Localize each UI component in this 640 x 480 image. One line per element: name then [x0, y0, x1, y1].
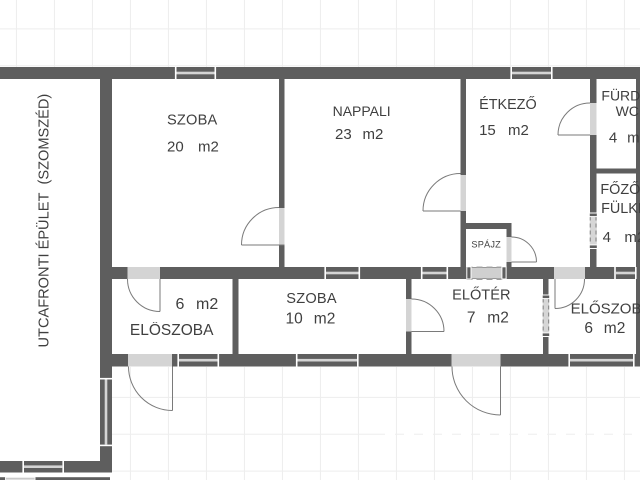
svg-text:ELŐTÉR: ELŐTÉR	[452, 287, 510, 304]
svg-text:SZOBA: SZOBA	[286, 291, 337, 307]
svg-text:m2: m2	[508, 122, 529, 139]
svg-text:ELŐSZOBA: ELŐSZOBA	[571, 301, 640, 318]
svg-text:6: 6	[176, 296, 185, 313]
svg-text:20: 20	[167, 139, 184, 156]
svg-text:SPÁJZ: SPÁJZ	[471, 240, 501, 250]
svg-text:15: 15	[479, 122, 496, 139]
svg-text:UTCAFRONTI ÉPÜLET (SZOMSZÉD): UTCAFRONTI ÉPÜLET (SZOMSZÉD)	[35, 94, 53, 348]
svg-text:ÉTKEZŐ: ÉTKEZŐ	[479, 96, 537, 113]
svg-text:m2: m2	[198, 139, 219, 156]
svg-text:FÜLKE: FÜLKE	[601, 199, 640, 217]
svg-text:m2: m2	[624, 229, 640, 246]
svg-text:FŐZŐ: FŐZŐ	[600, 181, 640, 198]
svg-text:4: 4	[609, 129, 617, 146]
svg-text:m2: m2	[363, 126, 384, 143]
svg-text:ELŐSZOBA: ELŐSZOBA	[130, 322, 214, 339]
svg-text:4: 4	[603, 229, 611, 246]
svg-text:23: 23	[335, 126, 352, 143]
svg-text:7: 7	[467, 310, 476, 327]
svg-text:WC: WC	[616, 103, 639, 119]
svg-text:SZOBA: SZOBA	[167, 113, 218, 129]
svg-text:m2: m2	[627, 129, 640, 146]
svg-text:NAPPALI: NAPPALI	[333, 103, 391, 119]
svg-text:6: 6	[584, 320, 593, 337]
svg-text:m2: m2	[314, 311, 336, 328]
svg-text:10: 10	[286, 311, 304, 328]
svg-text:m2: m2	[196, 296, 218, 313]
svg-text:FÜRDŐ: FÜRDŐ	[601, 86, 640, 103]
svg-text:m2: m2	[604, 320, 626, 337]
svg-text:m2: m2	[487, 310, 509, 327]
